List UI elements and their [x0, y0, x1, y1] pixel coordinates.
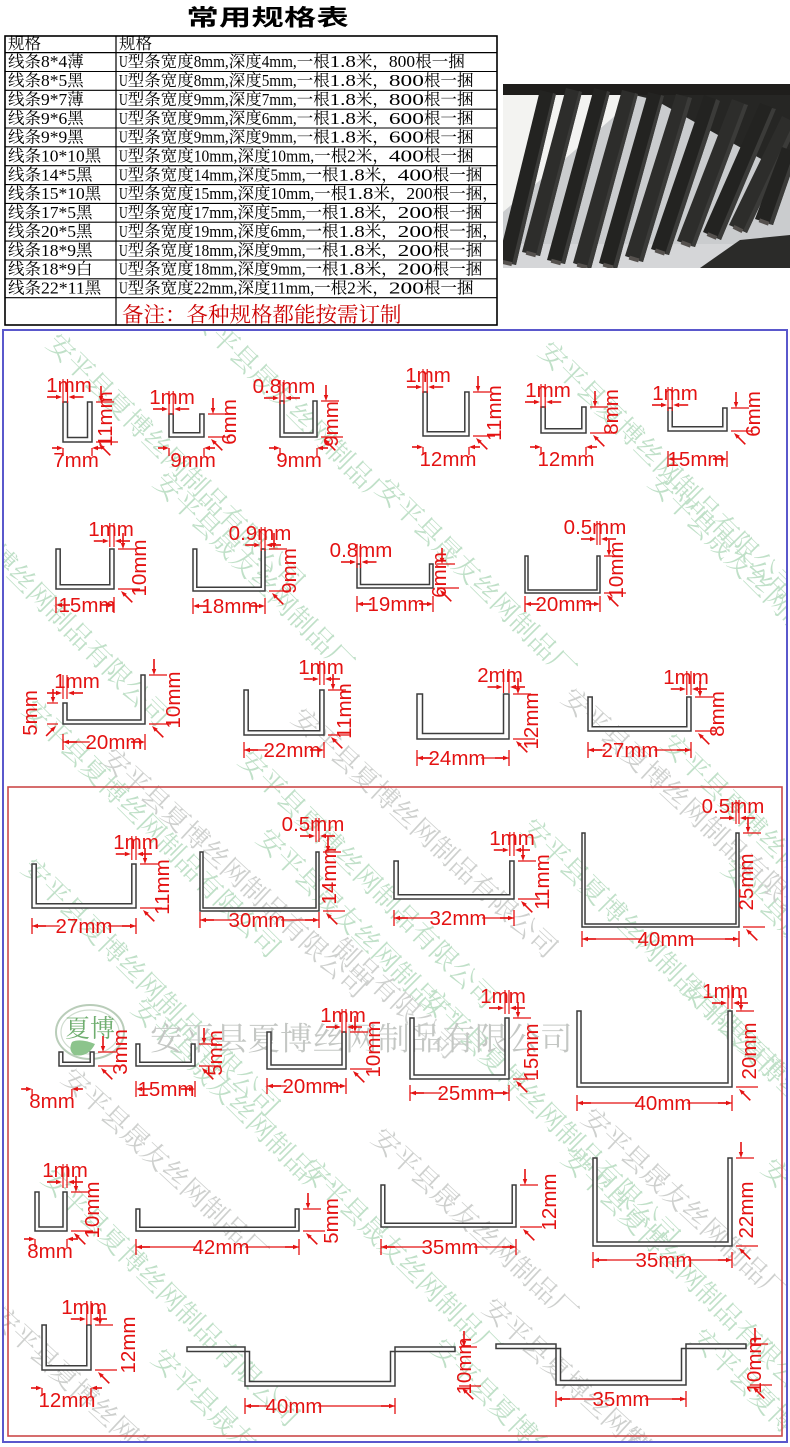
svg-text:1mm: 1mm [54, 670, 100, 693]
svg-text:10mm,: 10mm, [271, 147, 315, 166]
svg-text:40mm: 40mm [638, 928, 695, 951]
svg-text:9mm,: 9mm, [194, 90, 229, 109]
svg-text:800: 800 [389, 90, 424, 109]
svg-text:40mm: 40mm [266, 1395, 323, 1418]
svg-text:20mm: 20mm [738, 1023, 761, 1080]
svg-text:15mm: 15mm [520, 1024, 543, 1081]
svg-text:U: U [119, 165, 128, 184]
svg-text:12mm: 12mm [117, 1317, 140, 1374]
svg-text:15mm: 15mm [138, 1078, 195, 1101]
svg-text:5mm: 5mm [19, 690, 42, 736]
svg-text:U: U [119, 128, 128, 147]
svg-text:17mm,: 17mm, [194, 203, 238, 222]
svg-text:18mm: 18mm [202, 595, 259, 618]
svg-text:2: 2 [347, 147, 356, 166]
svg-text:1.8: 1.8 [339, 165, 365, 184]
svg-text:18*9: 18*9 [41, 260, 76, 279]
svg-text:1mm: 1mm [525, 379, 571, 402]
svg-text:1.8: 1.8 [330, 52, 356, 71]
svg-text:25mm: 25mm [438, 1082, 495, 1105]
svg-text:14mm: 14mm [318, 848, 341, 905]
svg-text:1.8: 1.8 [339, 241, 365, 260]
svg-text:9mm: 9mm [276, 449, 322, 472]
svg-text:17*5: 17*5 [41, 203, 76, 222]
svg-text:9mm: 9mm [320, 401, 343, 447]
svg-text:U: U [119, 90, 128, 109]
svg-text:1.8: 1.8 [339, 222, 365, 241]
svg-text:9mm,: 9mm, [271, 260, 306, 279]
svg-text:7mm: 7mm [53, 449, 99, 472]
svg-text:U: U [119, 222, 128, 241]
svg-text:18mm,: 18mm, [194, 260, 238, 279]
svg-text:12mm: 12mm [538, 1174, 561, 1231]
svg-text:9mm,: 9mm, [194, 109, 229, 128]
svg-text:15mm: 15mm [668, 448, 725, 471]
svg-text:27mm: 27mm [56, 915, 113, 938]
svg-text:10mm: 10mm [128, 540, 151, 597]
svg-text:19mm,: 19mm, [194, 222, 238, 241]
svg-text:1.8: 1.8 [347, 184, 373, 203]
svg-text:0.5mm: 0.5mm [702, 795, 765, 818]
svg-text:22mm: 22mm [264, 739, 321, 762]
svg-text:400: 400 [389, 147, 424, 166]
svg-text:12mm: 12mm [39, 1389, 96, 1412]
svg-text:10*10: 10*10 [41, 147, 85, 166]
svg-text:U: U [119, 147, 128, 166]
svg-text:18mm,: 18mm, [194, 241, 238, 260]
svg-text:5mm,: 5mm, [271, 203, 306, 222]
svg-text:32mm: 32mm [430, 907, 487, 930]
svg-text:5mm,: 5mm, [271, 165, 306, 184]
svg-text:15mm: 15mm [59, 594, 116, 617]
svg-text:12mm: 12mm [520, 693, 543, 750]
svg-text:5mm: 5mm [320, 1198, 343, 1244]
svg-text:200: 200 [398, 241, 433, 260]
svg-text:6mm: 6mm [218, 399, 241, 445]
svg-text:1mm: 1mm [652, 382, 698, 405]
svg-text:8mm: 8mm [600, 389, 623, 435]
svg-text:10mm,: 10mm, [194, 147, 238, 166]
svg-text:1.8: 1.8 [330, 71, 356, 90]
svg-text:200: 200 [406, 184, 432, 203]
svg-text:8mm: 8mm [29, 1090, 75, 1113]
svg-text:22*11: 22*11 [41, 279, 85, 298]
svg-text:1mm: 1mm [405, 364, 451, 387]
svg-text:6mm: 6mm [742, 391, 765, 437]
svg-text:11mm: 11mm [151, 859, 174, 914]
svg-text:1.8: 1.8 [330, 90, 356, 109]
svg-text:1mm: 1mm [298, 656, 344, 679]
svg-text:9*9: 9*9 [41, 128, 67, 147]
svg-text:8mm: 8mm [27, 1240, 73, 1263]
svg-text:1.8: 1.8 [330, 109, 356, 128]
svg-text:1.8: 1.8 [330, 128, 356, 147]
svg-text:10mm: 10mm [162, 672, 185, 729]
svg-text:22mm,: 22mm, [194, 279, 238, 298]
svg-text:200: 200 [398, 222, 433, 241]
svg-text:9mm: 9mm [278, 548, 301, 594]
svg-text:8mm: 8mm [706, 691, 729, 737]
svg-text:600: 600 [389, 109, 424, 128]
svg-text:8mm,: 8mm, [194, 71, 229, 90]
svg-text:400: 400 [398, 165, 433, 184]
svg-text:14*5: 14*5 [41, 165, 76, 184]
svg-text:U: U [119, 279, 128, 298]
svg-text:7mm,: 7mm, [262, 90, 297, 109]
svg-text:19mm: 19mm [368, 593, 425, 616]
svg-text:27mm: 27mm [602, 739, 659, 762]
svg-text:1mm: 1mm [489, 827, 535, 850]
svg-text:18*9: 18*9 [41, 241, 76, 260]
svg-text:30mm: 30mm [229, 909, 286, 932]
svg-text:12mm: 12mm [538, 448, 595, 471]
svg-text:11mm: 11mm [333, 683, 356, 738]
svg-text:1mm: 1mm [320, 1004, 366, 1027]
svg-text:6mm,: 6mm, [271, 222, 306, 241]
svg-text:11mm,: 11mm, [271, 279, 315, 298]
svg-text:9mm,: 9mm, [194, 128, 229, 147]
svg-text:8mm,: 8mm, [194, 52, 229, 71]
svg-text:9mm,: 9mm, [271, 241, 306, 260]
svg-text:11mm: 11mm [531, 854, 554, 909]
svg-text:1mm: 1mm [663, 666, 709, 689]
svg-text:600: 600 [389, 128, 424, 147]
svg-text:200: 200 [398, 203, 433, 222]
svg-text:1.8: 1.8 [339, 260, 365, 279]
svg-text:35mm: 35mm [422, 1236, 479, 1259]
svg-text:9mm,: 9mm, [262, 128, 297, 147]
svg-text:15*10: 15*10 [41, 184, 85, 203]
svg-text:10mm,: 10mm, [271, 184, 315, 203]
svg-text:11mm: 11mm [483, 385, 506, 440]
svg-text:20*5: 20*5 [41, 222, 76, 241]
svg-text:20mm: 20mm [536, 593, 593, 616]
svg-text:14mm,: 14mm, [194, 165, 238, 184]
svg-text:8*5: 8*5 [41, 71, 67, 90]
svg-text:800: 800 [389, 52, 415, 71]
svg-text:1mm: 1mm [42, 1159, 88, 1182]
svg-text:1mm: 1mm [88, 518, 134, 541]
svg-text:800: 800 [389, 71, 424, 90]
svg-text:22mm: 22mm [735, 1182, 758, 1239]
svg-text:20mm: 20mm [283, 1075, 340, 1098]
svg-text:200: 200 [398, 260, 433, 279]
svg-text:6mm,: 6mm, [262, 109, 297, 128]
svg-text:20mm: 20mm [86, 731, 143, 754]
svg-text:35mm: 35mm [593, 1388, 650, 1411]
svg-text:9*7: 9*7 [41, 90, 67, 109]
svg-text:10mm: 10mm [81, 1182, 104, 1239]
svg-text:U: U [119, 203, 128, 222]
svg-text:0.9mm: 0.9mm [229, 522, 292, 545]
svg-text:1mm: 1mm [149, 386, 195, 409]
svg-text:4mm,: 4mm, [262, 52, 297, 71]
svg-text:35mm: 35mm [636, 1249, 693, 1272]
svg-text:9*6: 9*6 [41, 109, 67, 128]
svg-text:5mm,: 5mm, [262, 71, 297, 90]
svg-text:8*4: 8*4 [41, 52, 67, 71]
svg-text:24mm: 24mm [429, 747, 486, 770]
svg-text:U: U [119, 71, 128, 90]
svg-text:15mm,: 15mm, [194, 184, 238, 203]
svg-text:11mm: 11mm [94, 391, 117, 446]
svg-text:25mm: 25mm [735, 854, 758, 911]
svg-text:42mm: 42mm [193, 1236, 250, 1259]
svg-text:1.8: 1.8 [339, 203, 365, 222]
svg-text:U: U [119, 52, 128, 71]
svg-text:6mm: 6mm [428, 552, 451, 598]
svg-text:2mm: 2mm [477, 664, 523, 687]
svg-text:5mm: 5mm [204, 1030, 227, 1076]
svg-text:2: 2 [347, 279, 356, 298]
svg-text:9mm: 9mm [170, 449, 216, 472]
svg-text:U: U [119, 109, 128, 128]
svg-text:0.5mm: 0.5mm [282, 813, 345, 836]
svg-text:U: U [119, 241, 128, 260]
svg-text:1mm: 1mm [46, 374, 92, 397]
svg-text:0.5mm: 0.5mm [564, 516, 627, 539]
svg-text:U: U [119, 260, 128, 279]
svg-text:U: U [119, 184, 128, 203]
svg-text:12mm: 12mm [420, 448, 477, 471]
svg-text:200: 200 [389, 279, 424, 298]
svg-text:1mm: 1mm [480, 985, 526, 1008]
svg-text:40mm: 40mm [635, 1092, 692, 1115]
